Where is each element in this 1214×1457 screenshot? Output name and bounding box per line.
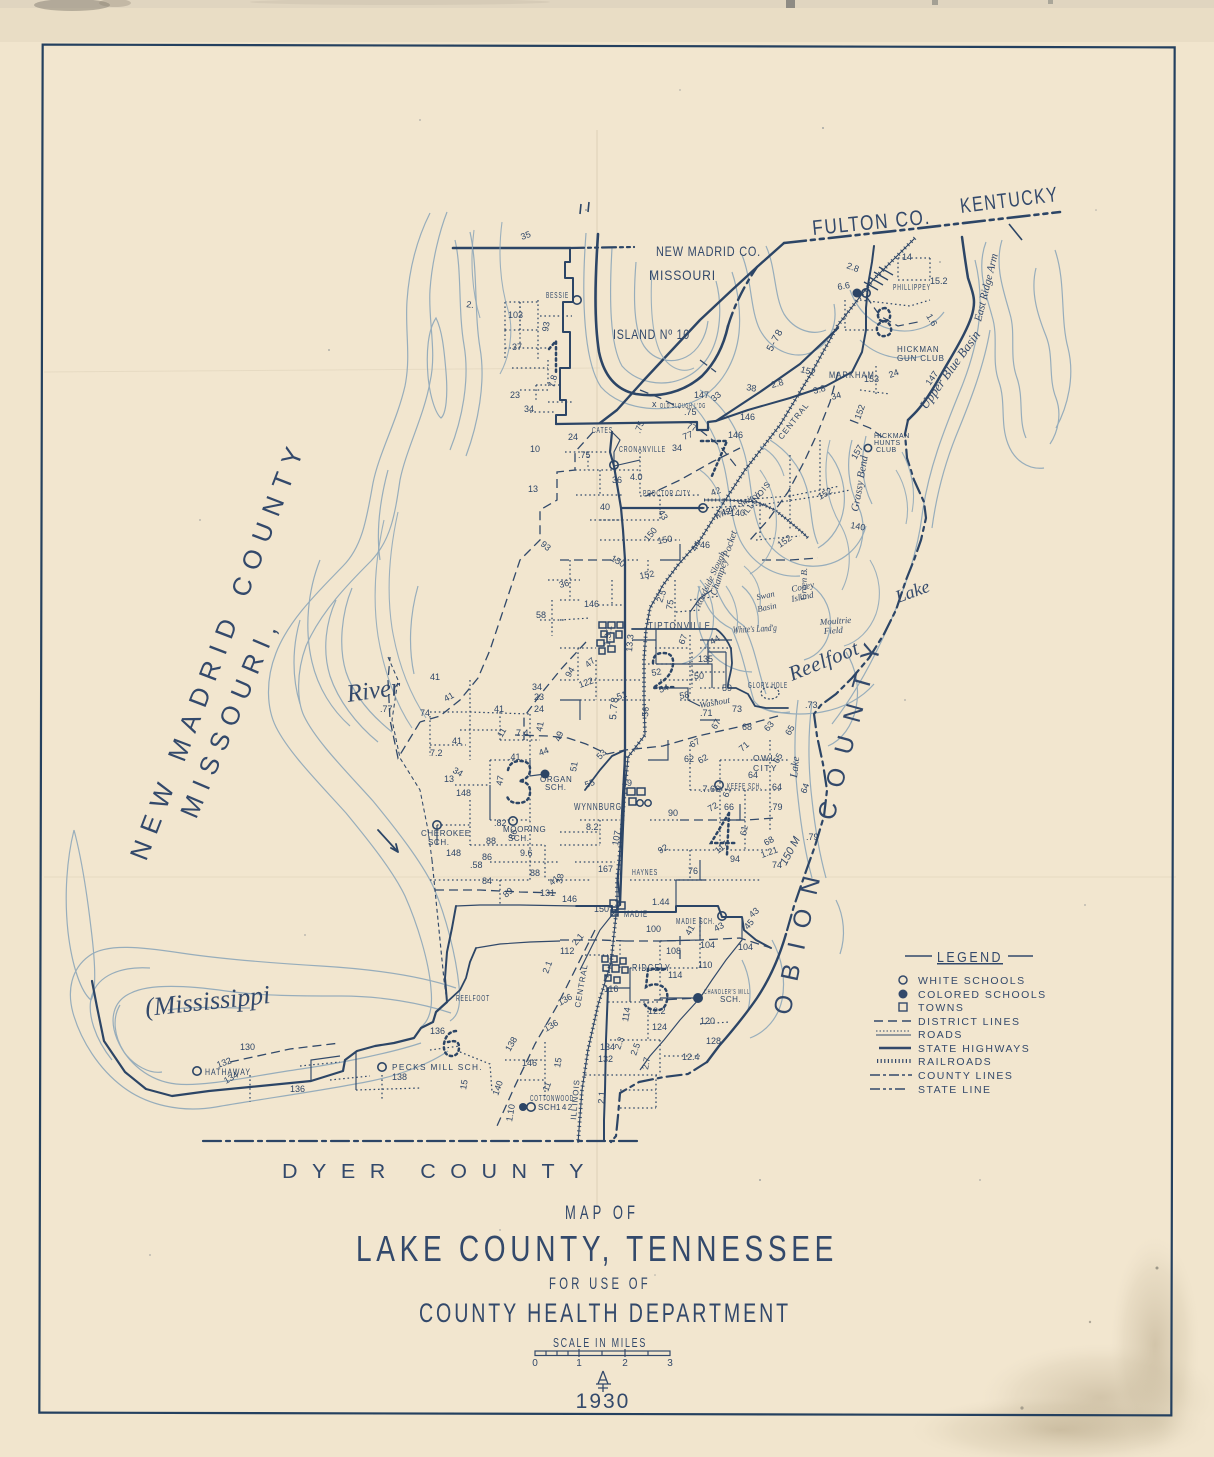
- svg-text:34: 34: [532, 682, 542, 692]
- svg-text:47: 47: [494, 775, 506, 787]
- svg-text:76: 76: [688, 866, 698, 876]
- svg-text:12.4: 12.4: [682, 1052, 700, 1062]
- svg-text:.75: .75: [684, 407, 697, 417]
- svg-text:90: 90: [668, 808, 678, 818]
- svg-text:GUN CLUB: GUN CLUB: [897, 354, 945, 363]
- svg-text:RIDGELY: RIDGELY: [632, 963, 671, 974]
- svg-text:CHEROKEE: CHEROKEE: [421, 829, 471, 838]
- svg-text:52: 52: [651, 666, 663, 678]
- svg-text:130: 130: [240, 1042, 255, 1052]
- svg-text:.73: .73: [805, 700, 818, 710]
- svg-text:148: 148: [446, 848, 461, 858]
- svg-text:41: 41: [452, 736, 462, 746]
- svg-text:OLD SLOUGH L'DG: OLD SLOUGH L'DG: [660, 401, 706, 410]
- svg-text:146: 146: [728, 430, 743, 440]
- svg-text:138: 138: [392, 1072, 407, 1082]
- svg-text:59: 59: [722, 683, 732, 693]
- svg-text:61: 61: [738, 825, 750, 837]
- svg-text:51: 51: [568, 761, 580, 773]
- svg-text:CATES: CATES: [592, 425, 613, 435]
- svg-text:3: 3: [667, 1358, 673, 1369]
- svg-text:120: 120: [700, 1016, 715, 1026]
- svg-text:66: 66: [724, 802, 734, 812]
- svg-text:COUNTY HEALTH DEPARTMENT: COUNTY HEALTH DEPARTMENT: [419, 1298, 791, 1328]
- svg-text:136: 136: [290, 1084, 305, 1094]
- svg-text:135: 135: [698, 654, 713, 664]
- svg-text:146: 146: [740, 412, 755, 422]
- svg-text:1.3.1: 1.3.1: [602, 625, 614, 646]
- svg-text:1: 1: [576, 1358, 582, 1369]
- svg-text:73: 73: [732, 704, 742, 714]
- svg-text:15.2: 15.2: [930, 276, 948, 286]
- svg-text:15: 15: [552, 1057, 564, 1069]
- svg-text:112: 112: [560, 946, 574, 956]
- svg-text:1.44: 1.44: [652, 897, 670, 907]
- svg-text:COLORED SCHOOLS: COLORED SCHOOLS: [918, 989, 1047, 1001]
- svg-text:DISTRICT LINES: DISTRICT LINES: [918, 1016, 1021, 1028]
- svg-text:BESSIE: BESSIE: [546, 291, 569, 300]
- svg-text:PHILLIPPEY: PHILLIPPEY: [893, 283, 931, 292]
- svg-text:38: 38: [746, 382, 758, 394]
- svg-text:2: 2: [622, 1358, 628, 1369]
- svg-text:134: 134: [600, 1042, 615, 1052]
- svg-text:TIPTONVILLE: TIPTONVILLE: [648, 621, 711, 632]
- svg-text:86: 86: [482, 852, 492, 862]
- svg-text:13: 13: [528, 484, 538, 494]
- svg-text:.41: .41: [508, 752, 521, 762]
- svg-text:74: 74: [420, 708, 430, 718]
- svg-text:HUNTS: HUNTS: [874, 440, 901, 447]
- svg-text:148: 148: [456, 788, 471, 798]
- svg-text:SCALE IN MILES: SCALE IN MILES: [553, 1335, 647, 1350]
- svg-text:.71: .71: [700, 708, 713, 718]
- svg-text:147: 147: [694, 390, 709, 400]
- svg-text:HICKMAN: HICKMAN: [874, 433, 910, 440]
- svg-text:124: 124: [652, 1022, 667, 1032]
- svg-text:41: 41: [494, 704, 504, 714]
- svg-text:.79: .79: [770, 802, 783, 812]
- svg-text:0: 0: [532, 1358, 538, 1369]
- svg-text:ISLAND Nº 10: ISLAND Nº 10: [613, 326, 690, 342]
- svg-text:TOWNS: TOWNS: [918, 1002, 964, 1014]
- svg-text:PECKS MILL SCH.: PECKS MILL SCH.: [392, 1062, 483, 1072]
- svg-text:100: 100: [646, 924, 661, 934]
- svg-text:HICKMAN: HICKMAN: [897, 345, 940, 354]
- svg-text:1930: 1930: [576, 1390, 631, 1413]
- svg-text:Green B.: Green B.: [798, 568, 809, 600]
- svg-text:34: 34: [524, 404, 534, 414]
- svg-text:COTTONWOOD: COTTONWOOD: [530, 1094, 574, 1103]
- svg-text:GLORY HOLE: GLORY HOLE: [748, 681, 788, 690]
- svg-text:24: 24: [534, 704, 544, 714]
- svg-text:23: 23: [510, 390, 520, 400]
- svg-text:13.3: 13.3: [624, 634, 635, 652]
- svg-text:64: 64: [772, 782, 782, 792]
- svg-text:NEW MADRID CO.: NEW MADRID CO.: [656, 243, 761, 259]
- svg-text:84: 84: [482, 876, 492, 886]
- svg-text:93: 93: [540, 321, 552, 333]
- svg-text:Lake: Lake: [788, 756, 802, 780]
- svg-text:56: 56: [640, 706, 651, 717]
- svg-text:37: 37: [512, 342, 522, 352]
- svg-text:104: 104: [738, 942, 753, 952]
- svg-text:COUNTY LINES: COUNTY LINES: [918, 1070, 1013, 1082]
- svg-text:MADIE SCH.: MADIE SCH.: [676, 916, 715, 926]
- svg-text:110: 110: [698, 960, 712, 970]
- svg-text:128: 128: [706, 1036, 721, 1046]
- svg-text:132: 132: [598, 1054, 613, 1064]
- svg-text:FOR USE OF: FOR USE OF: [549, 1274, 651, 1293]
- svg-text:58: 58: [679, 689, 691, 701]
- svg-text:2.7: 2.7: [640, 1056, 652, 1070]
- svg-text:49: 49: [622, 778, 632, 788]
- svg-text:108: 108: [666, 946, 681, 956]
- svg-text:146: 146: [584, 599, 599, 609]
- svg-text:SCH.: SCH.: [720, 995, 741, 1004]
- svg-text:ROADS: ROADS: [918, 1029, 963, 1041]
- svg-text:41: 41: [430, 672, 440, 682]
- svg-text:MAP OF: MAP OF: [565, 1203, 639, 1224]
- svg-text:15: 15: [458, 1079, 470, 1091]
- svg-text:23: 23: [534, 692, 544, 702]
- svg-text:RAILROADS: RAILROADS: [918, 1056, 992, 1068]
- svg-text:HAYNES: HAYNES: [632, 867, 658, 877]
- svg-text:Field: Field: [822, 625, 843, 636]
- svg-text:24: 24: [568, 432, 578, 442]
- svg-text:12.2: 12.2: [648, 1006, 666, 1016]
- svg-text:64: 64: [748, 770, 758, 780]
- svg-text:88: 88: [530, 868, 540, 878]
- svg-text:CLUB: CLUB: [876, 447, 897, 454]
- svg-text:REELFOOT: REELFOOT: [456, 993, 490, 1003]
- svg-text:MISSOURI: MISSOURI: [649, 267, 716, 283]
- svg-text:116: 116: [604, 984, 618, 994]
- svg-text:131: 131: [540, 888, 555, 898]
- svg-text:LAKE COUNTY, TENNESSEE: LAKE COUNTY, TENNESSEE: [356, 1228, 838, 1269]
- svg-text:6.6: 6.6: [837, 280, 851, 292]
- svg-text:103: 103: [508, 310, 523, 320]
- svg-text:146: 146: [522, 1058, 537, 1068]
- svg-text:.82: .82: [494, 818, 507, 828]
- svg-text:8.2: 8.2: [586, 822, 599, 832]
- svg-text:MADIE: MADIE: [624, 909, 648, 920]
- svg-text:104: 104: [700, 940, 715, 950]
- svg-text:LEGEND: LEGEND: [937, 949, 1003, 966]
- svg-text:9.6: 9.6: [520, 848, 533, 858]
- svg-text:STATE LINE: STATE LINE: [918, 1084, 992, 1096]
- svg-text:10: 10: [530, 444, 540, 454]
- svg-text:114: 114: [668, 970, 682, 980]
- svg-text:88: 88: [486, 836, 496, 846]
- svg-text:75: 75: [664, 599, 676, 611]
- svg-text:94: 94: [730, 854, 740, 864]
- svg-text:WHITE SCHOOLS: WHITE SCHOOLS: [918, 975, 1026, 987]
- svg-text:136: 136: [430, 1026, 445, 1036]
- svg-text:SCH.: SCH.: [545, 783, 567, 792]
- svg-text:.75: .75: [578, 450, 591, 460]
- svg-text:7.4: 7.4: [516, 728, 529, 738]
- svg-text:x: x: [652, 399, 658, 409]
- svg-text:50: 50: [694, 671, 704, 681]
- svg-text:13: 13: [444, 774, 454, 784]
- svg-text:SCH.: SCH.: [428, 838, 450, 847]
- svg-text:153: 153: [864, 374, 879, 384]
- svg-text:PROCTOR CITY: PROCTOR CITY: [643, 488, 691, 498]
- svg-text:146: 146: [562, 894, 577, 904]
- svg-text:.7.66: .7.66: [700, 784, 720, 794]
- svg-text:167: 167: [598, 864, 613, 874]
- svg-text:.79: .79: [806, 832, 819, 842]
- svg-text:36: 36: [612, 475, 622, 485]
- svg-text:4.0: 4.0: [630, 472, 643, 482]
- svg-text:41: 41: [534, 721, 546, 733]
- svg-text:150: 150: [594, 904, 609, 914]
- svg-text:2.1: 2.1: [596, 1091, 607, 1104]
- svg-text:58: 58: [536, 610, 546, 620]
- svg-text:46: 46: [700, 540, 710, 550]
- svg-text:40: 40: [600, 502, 610, 512]
- svg-text:DYER COUNTY: DYER COUNTY: [282, 1161, 598, 1183]
- svg-text:34: 34: [672, 443, 682, 453]
- svg-text:14: 14: [902, 252, 912, 262]
- svg-text:WYNNBURG: WYNNBURG: [574, 801, 622, 813]
- svg-text:7.2: 7.2: [430, 748, 443, 758]
- svg-text:STATE HIGHWAYS: STATE HIGHWAYS: [918, 1043, 1030, 1055]
- svg-text:.58: .58: [470, 860, 483, 870]
- svg-text:62: 62: [684, 754, 694, 764]
- svg-text:74: 74: [772, 860, 782, 870]
- svg-text:68: 68: [742, 722, 752, 732]
- svg-text:2.: 2.: [466, 299, 475, 310]
- svg-text:.77: .77: [380, 704, 393, 714]
- svg-text:CRONANVILLE: CRONANVILLE: [619, 444, 666, 454]
